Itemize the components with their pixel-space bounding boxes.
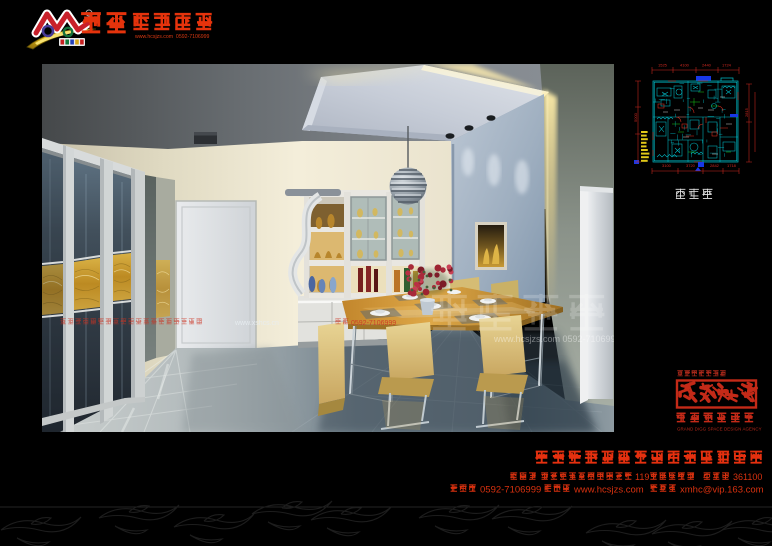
svg-text:www.hcsjzs.com: www.hcsjzs.com: [573, 485, 644, 496]
svg-text:www.hcsjzs.com 0592-7106999: www.hcsjzs.com 0592-7106999: [493, 334, 614, 344]
svg-text:0592-7106999: 0592-7106999: [351, 320, 396, 327]
svg-text:www.xshcs.cn: www.xshcs.cn: [234, 320, 279, 327]
svg-text:2815: 2815: [744, 107, 749, 117]
svg-text:xmhc@vip.163.com: xmhc@vip.163.com: [680, 485, 764, 496]
svg-text:4100: 4100: [680, 63, 690, 68]
svg-text:5000: 5000: [633, 112, 638, 122]
svg-text:0592-7106999: 0592-7106999: [480, 485, 541, 496]
svg-text:GRAND DIGG SPACE DESIGN AGENCY: GRAND DIGG SPACE DESIGN AGENCY: [677, 427, 762, 432]
svg-text:2440: 2440: [702, 63, 712, 68]
svg-text:361100: 361100: [733, 472, 762, 482]
svg-text:1724: 1724: [722, 63, 732, 68]
svg-text:3720: 3720: [686, 163, 696, 168]
svg-text:1718: 1718: [727, 163, 737, 168]
svg-text:3100: 3100: [662, 163, 672, 168]
svg-text:119: 119: [635, 472, 649, 482]
svg-text:1525: 1525: [658, 63, 668, 68]
svg-text:2842: 2842: [710, 163, 720, 168]
